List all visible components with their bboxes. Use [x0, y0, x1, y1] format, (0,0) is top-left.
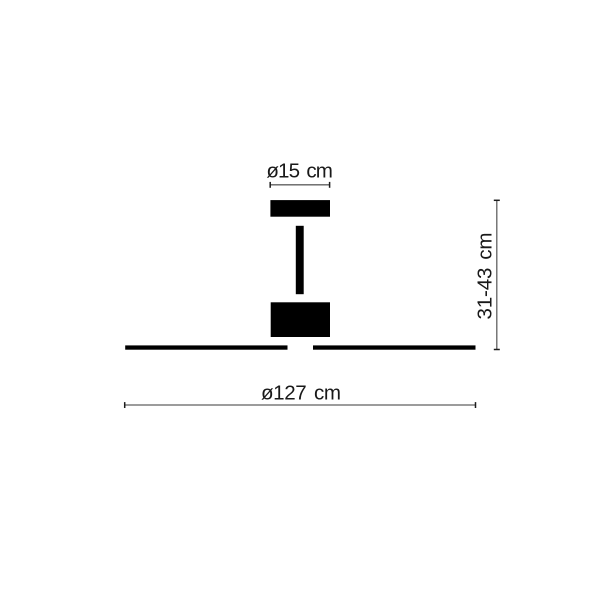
svg-text:31-43 cm: 31-43 cm — [473, 233, 496, 320]
svg-text:ø15 cm: ø15 cm — [266, 160, 333, 183]
svg-text:ø127 cm: ø127 cm — [261, 381, 341, 404]
